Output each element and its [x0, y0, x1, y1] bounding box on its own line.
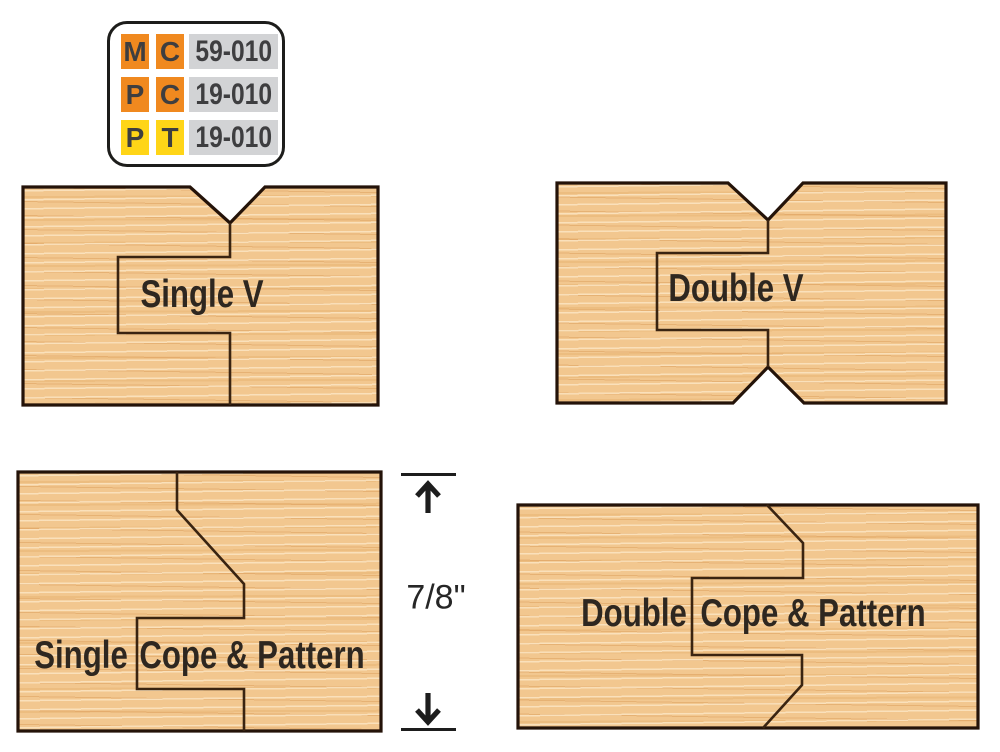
legend-code-box: 19-010: [189, 77, 278, 112]
legend-code: 19-010: [195, 78, 272, 112]
legend-chip-type: C: [156, 34, 184, 69]
panel-label-cope-pattern: Cope & Pattern: [139, 634, 364, 678]
panel-double-v: Double V: [557, 183, 946, 403]
legend-code: 19-010: [195, 121, 272, 155]
panel-linework: [14, 468, 385, 735]
legend-chip-type: C: [156, 77, 184, 112]
dimension-label: 7/8": [406, 579, 465, 618]
arrow-up-icon: [413, 480, 443, 516]
legend-row: P T 19-010: [121, 120, 282, 155]
panel-label-double-v: Double V: [668, 267, 803, 311]
panel-label-single-v: Single V: [140, 273, 263, 317]
legend-chip-tool: P: [121, 77, 149, 112]
panel-label-cope-pattern: Cope & Pattern: [700, 592, 925, 636]
part-number-legend: M C 59-010 P C 19-010 P T 19-010: [107, 21, 285, 167]
legend-chip-type: T: [156, 120, 184, 155]
legend-code-box: 59-010: [189, 34, 278, 69]
legend-row: M C 59-010: [121, 34, 282, 69]
legend-row: P C 19-010: [121, 77, 282, 112]
panel-label-double: Double: [581, 592, 687, 636]
panel-double-cope-pattern: Double Cope & Pattern: [518, 505, 978, 728]
dimension-tick-top: [401, 473, 456, 476]
dimension-tick-bottom: [401, 728, 456, 731]
panel-single-cope-pattern: Single Cope & Pattern: [18, 472, 381, 731]
legend-code: 59-010: [195, 35, 272, 69]
legend-chip-tool: M: [121, 34, 149, 69]
panel-single-v: Single V: [23, 187, 378, 405]
legend-chip-tool: P: [121, 120, 149, 155]
joinery-profile-diagram: M C 59-010 P C 19-010 P T 19-010 Single …: [0, 0, 1000, 752]
legend-code-box: 19-010: [189, 120, 278, 155]
arrow-down-icon: [413, 690, 443, 726]
panel-label-single: Single: [34, 634, 128, 678]
